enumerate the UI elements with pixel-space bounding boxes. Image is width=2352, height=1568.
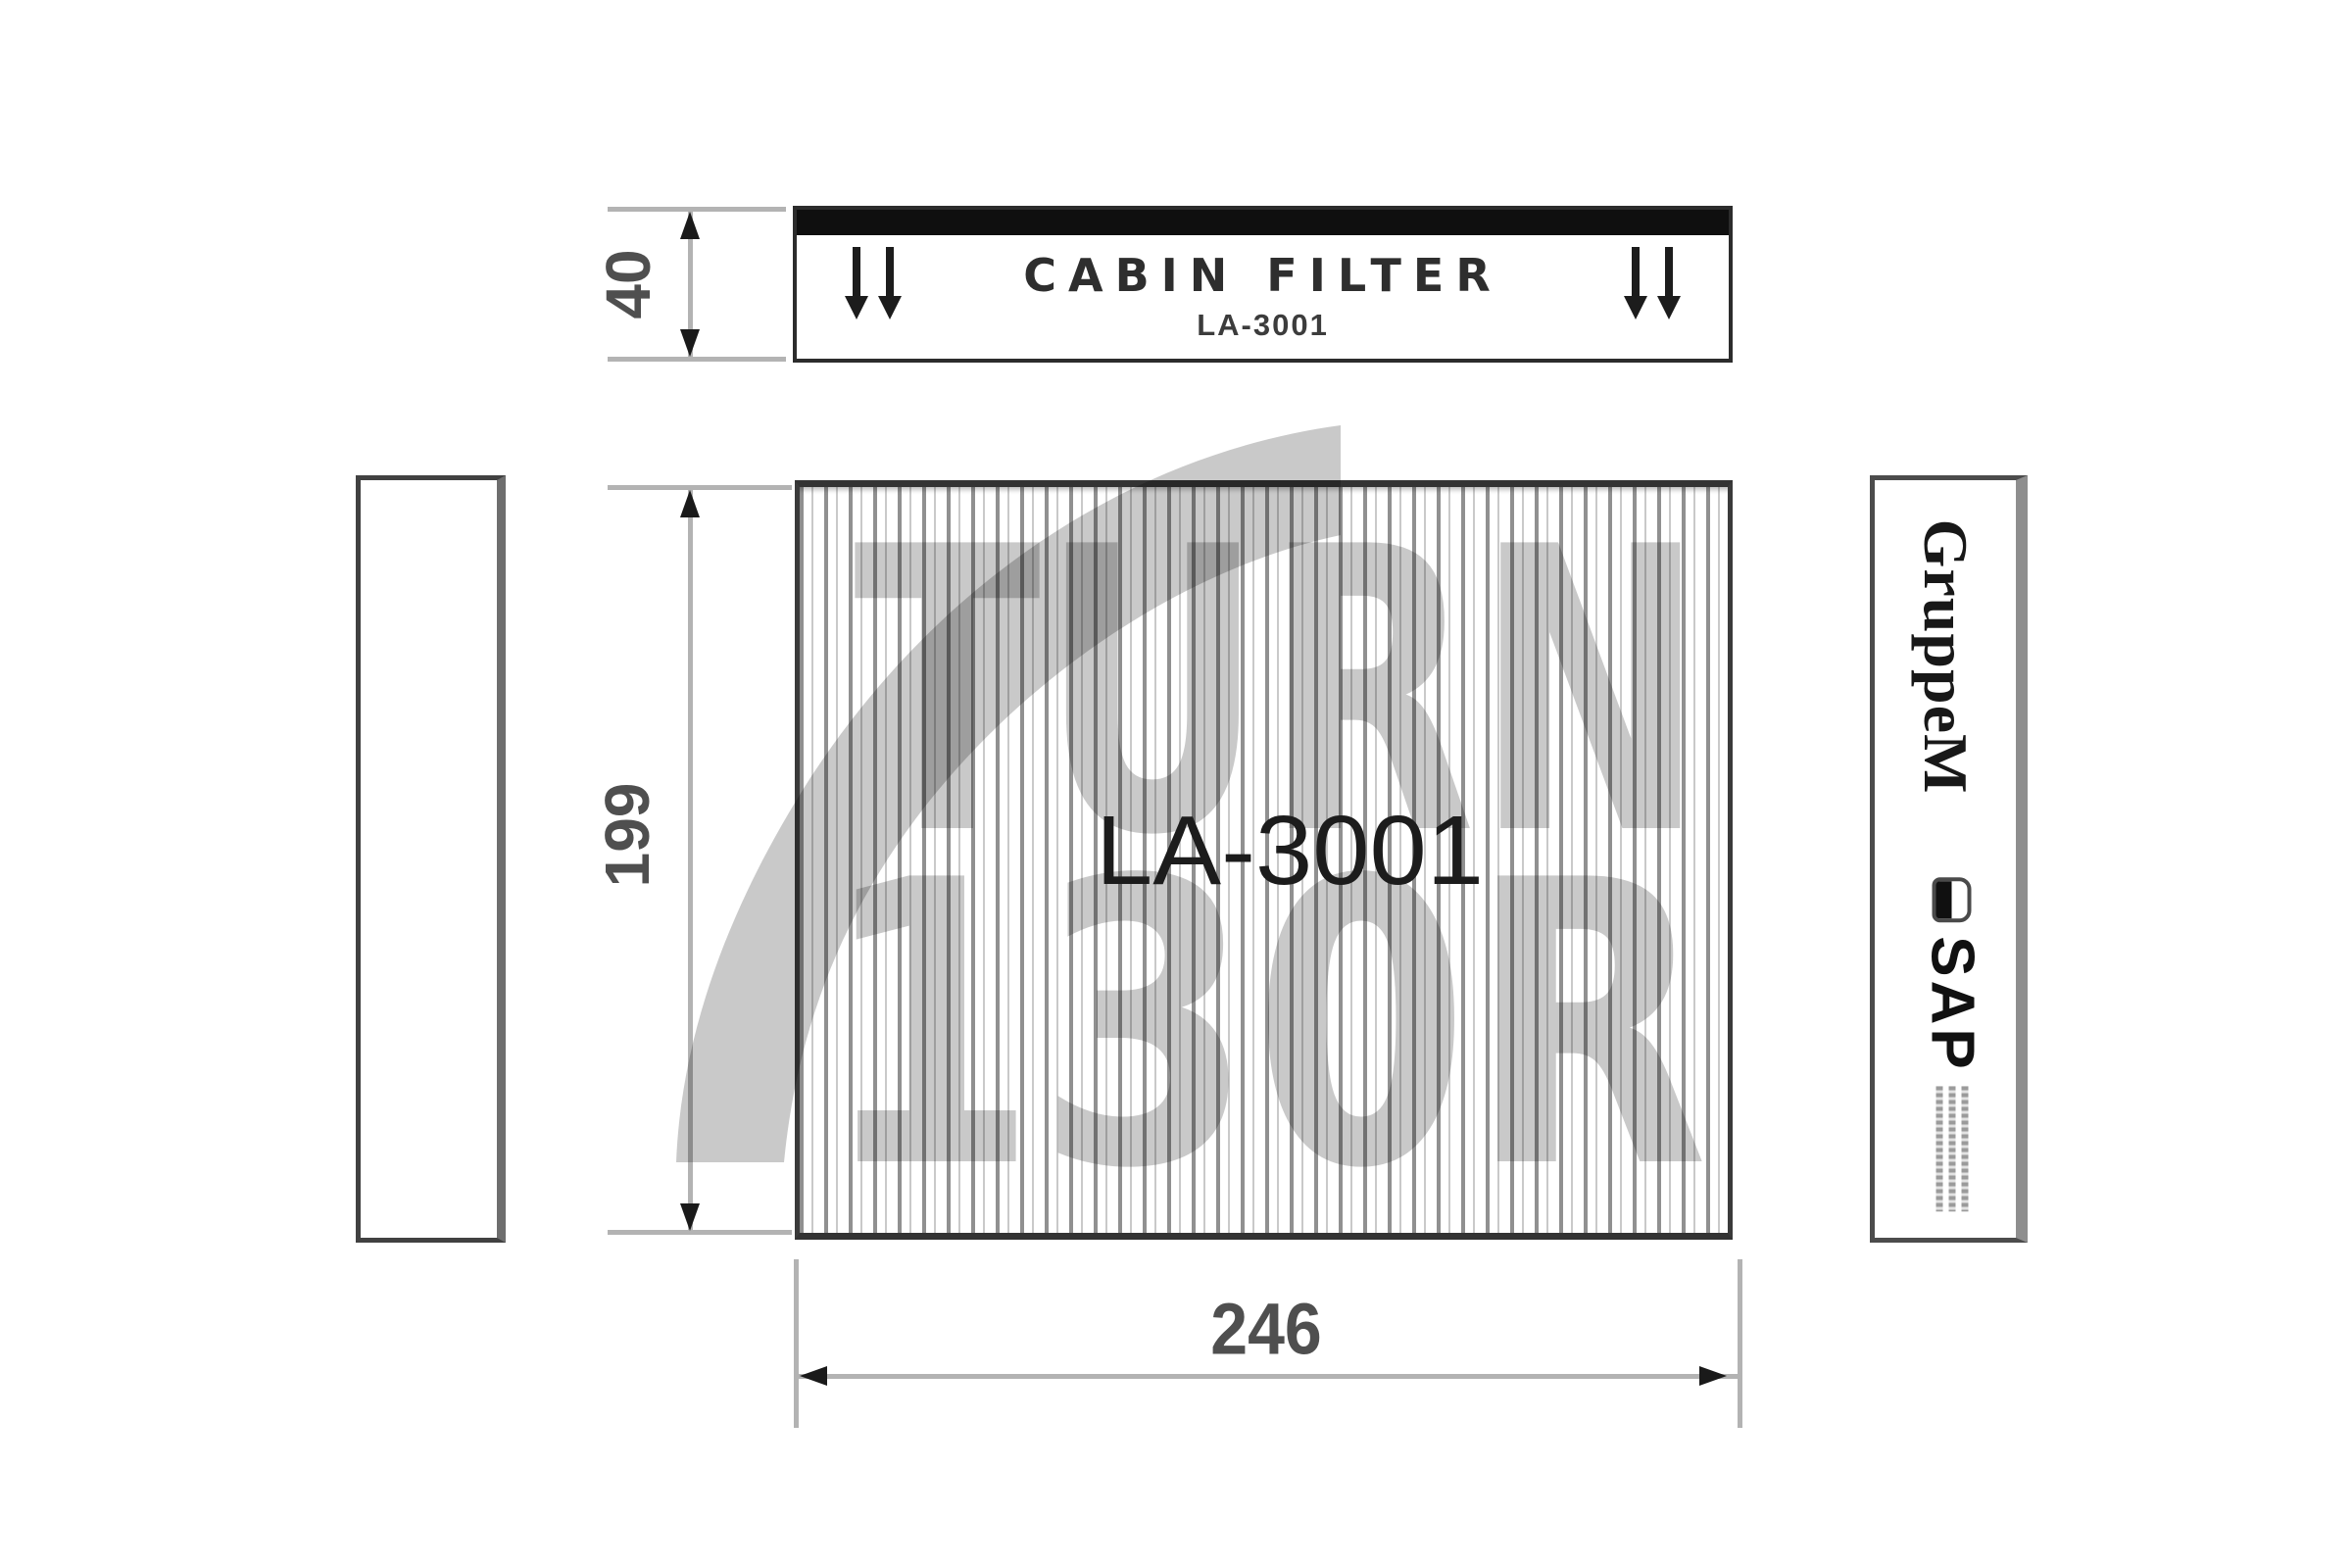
fine-print-lines <box>1936 1087 1969 1212</box>
fine-print-line <box>1936 1087 1943 1212</box>
product-name: SAP <box>1918 936 1987 1072</box>
down-arrow-icon <box>878 247 902 319</box>
arrowhead-up-icon <box>680 212 700 239</box>
arrowhead-right-icon <box>1699 1366 1727 1386</box>
label-title: CABIN FILTER <box>1023 249 1502 302</box>
dim-label-246: 246 <box>1210 1288 1322 1371</box>
dim-label-40: 40 <box>592 249 664 318</box>
dim-line-246 <box>796 1374 1742 1379</box>
ext-line-246-right <box>1738 1259 1742 1428</box>
ext-line-40-bottom <box>608 357 786 362</box>
dim-line-199 <box>688 488 693 1233</box>
filter-pleats <box>800 487 1728 1233</box>
ext-line-246-left <box>794 1259 799 1428</box>
arrowhead-down-icon <box>680 329 700 357</box>
down-arrow-icon <box>1657 247 1681 319</box>
filter-side-view-left <box>356 475 506 1243</box>
ext-line-199-top <box>608 485 792 490</box>
fine-print-line <box>1949 1087 1956 1212</box>
sap-lockup: SAP <box>1918 877 1987 1211</box>
arrowhead-down-icon <box>680 1203 700 1231</box>
fine-print-line <box>1962 1087 1969 1212</box>
airflow-down-arrows-right-icon <box>1619 247 1686 324</box>
down-arrow-icon <box>1624 247 1647 319</box>
down-arrow-icon <box>845 247 868 319</box>
dim-label-199: 199 <box>591 783 663 888</box>
helmet-icon <box>1933 877 1972 922</box>
top-label-box: CABIN FILTER LA-3001 <box>793 206 1733 363</box>
airflow-down-arrows-left-icon <box>840 247 906 324</box>
brand-name: GruppeM <box>1909 519 1982 795</box>
arrowhead-up-icon <box>680 490 700 517</box>
label-part-number: LA-3001 <box>1197 308 1329 343</box>
filter-front-view <box>795 480 1733 1240</box>
arrowhead-left-icon <box>800 1366 827 1386</box>
label-black-band <box>797 210 1729 235</box>
diagram-canvas: CABIN FILTER LA-3001 40 199 246 GruppeM … <box>0 0 2352 1568</box>
ext-line-199-bottom <box>608 1230 792 1235</box>
